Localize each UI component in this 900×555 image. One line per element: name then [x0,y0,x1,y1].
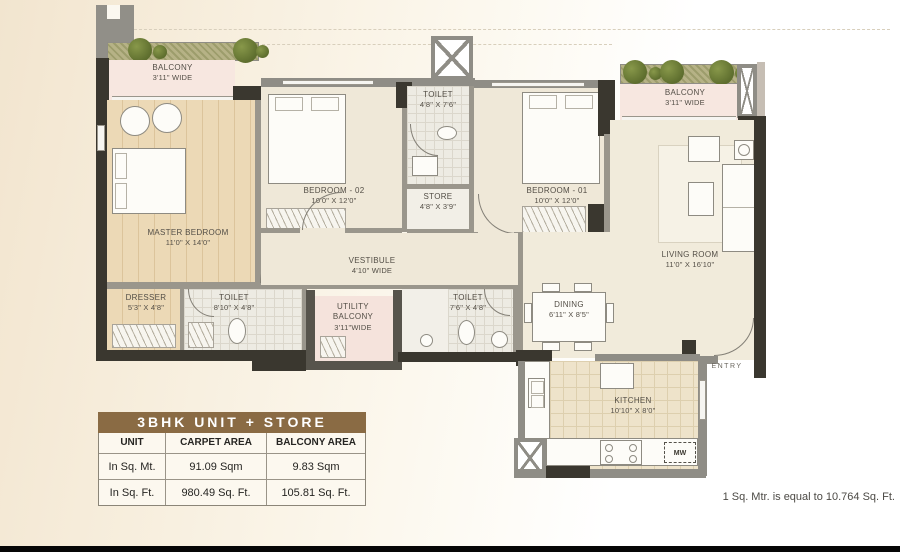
burner-icon [629,444,637,452]
pillow-icon [275,97,303,111]
balcony-left-label: BALCONY 3'11" WIDE [125,63,220,83]
area-table-cell: 9.83 Sqm [267,453,365,479]
area-table: 3BHK UNIT + STORE UNIT CARPET AREA BALCO… [98,412,366,506]
shrub-icon [709,60,734,85]
area-table-cell: In Sq. Mt. [99,453,166,479]
wardrobe-icon [112,324,176,348]
wall-segment [754,360,766,378]
wall-segment [306,290,315,370]
area-table-cell: 980.49 Sq. Ft. [166,479,267,505]
area-table-header-cell: UNIT [99,433,166,453]
chair-icon [606,303,614,323]
table-row: In Sq. Ft. 980.49 Sq. Ft. 105.81 Sq. Ft. [99,479,365,505]
pillow-icon [565,95,593,109]
dresser-label: DRESSER 5'3" X 4'8" [110,293,182,313]
coffee-table-icon [688,182,714,216]
wardrobe-icon [522,206,586,234]
conversion-footnote: 1 Sq. Mtr. is equal to 10.764 Sq. Ft. [700,491,895,503]
wall-segment [398,352,518,362]
chair-icon [120,106,150,136]
chair-icon [152,103,182,133]
shrub-icon [128,38,152,62]
shrub-icon [233,38,258,63]
bed-icon [112,148,186,214]
living-room-label: LIVING ROOM 11'0" X 16'10" [640,250,740,270]
wall-segment [514,469,706,478]
chair-icon [574,342,592,351]
master-bedroom-label: MASTER BEDROOM 11'0" X 14'0" [138,228,238,248]
entry-label: ENTRY [700,363,754,370]
sink-bowl [531,395,544,408]
bed-icon [522,92,600,184]
utility-balcony-label: UTILITY BALCONY 3'11"WIDE [324,302,382,333]
area-table-cell: In Sq. Ft. [99,479,166,505]
burner-icon [605,455,613,463]
window-icon [492,82,584,87]
burner-icon [629,455,637,463]
sofa-seam [723,207,755,208]
microwave-icon: MW [664,442,696,463]
wall-segment [546,466,590,478]
wall-segment [757,62,765,120]
shrub-icon [623,60,647,84]
wc-icon [437,126,457,140]
window-icon [699,380,706,420]
pillow-icon [115,183,127,209]
area-table-header-cell: BALCONY AREA [267,433,365,453]
wc-icon [458,320,475,345]
pillow-icon [311,97,339,111]
wall-segment [252,350,306,371]
window-icon [97,125,105,151]
shrub-icon [256,45,269,58]
pillow-icon [529,95,557,109]
duct-x-icon [431,36,473,80]
stove-icon [600,440,642,465]
chair-icon [542,283,560,292]
utility-hatch [320,336,346,358]
wall-segment [96,58,109,102]
chair-icon [524,303,532,323]
balcony-right-label: BALCONY 3'11" WIDE [640,88,730,108]
sofa-icon [722,164,756,252]
toilet-top-label: TOILET 4'8" X 7'6" [408,90,468,110]
wall-segment [595,354,700,361]
sink-icon [528,378,545,408]
burner-icon [605,444,613,452]
basin-icon [491,331,508,348]
area-table-cell: 91.09 Sqm [166,453,267,479]
wall-segment [518,232,523,352]
area-table-cell: 105.81 Sq. Ft. [267,479,365,505]
chair-icon [574,283,592,292]
window-icon [283,80,373,85]
store-label: STORE 4'8" X 3'9" [407,192,469,212]
dimension-line [134,29,890,30]
wc-icon [228,318,246,344]
lamp-icon [734,140,754,160]
fridge-icon [600,363,634,389]
area-table-title: 3BHK UNIT + STORE [98,412,366,433]
shower-icon [188,322,214,348]
pillow-icon [115,153,127,179]
sink-icon [412,156,438,176]
dining-label: DINING 6'11" X 8'5" [534,300,604,320]
vestibule-label: VESTIBULE 4'10" WIDE [322,256,422,276]
wall-segment [411,78,475,86]
wall-segment [306,361,402,370]
sink-bowl [531,381,544,394]
column-notch [107,5,120,19]
lamp-circle [738,144,750,156]
kitchen-label: KITCHEN 10'10" X 8'0" [583,396,683,416]
shrub-icon [153,45,167,59]
duct-x-icon [737,64,757,118]
floorplan-canvas: BALCONY 3'11" WIDE MASTER BEDROOM 11'0" … [0,0,900,555]
area-table-header-cell: CARPET AREA [166,433,267,453]
tv-console-icon [688,136,720,162]
area-table-grid: UNIT CARPET AREA BALCONY AREA In Sq. Mt.… [98,433,366,506]
bed-icon [268,94,346,184]
wall-segment [754,118,766,360]
shrub-icon [660,60,684,84]
table-row: In Sq. Mt. 91.09 Sqm 9.83 Sqm [99,453,365,479]
basin-icon [420,334,433,347]
